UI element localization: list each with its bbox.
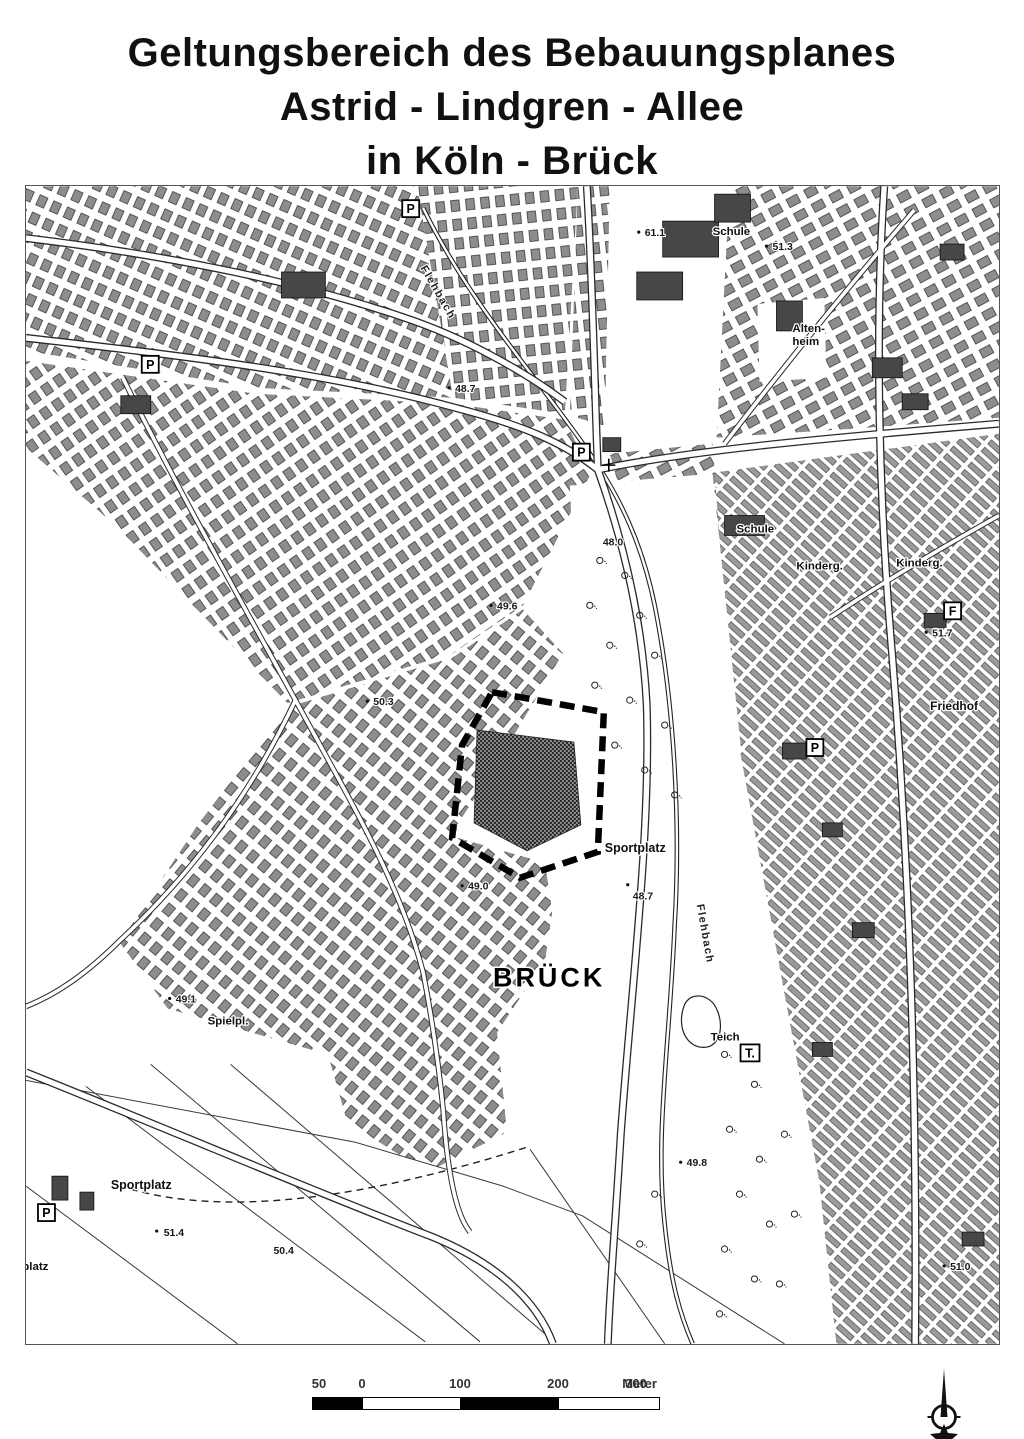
plan-site-hatched	[474, 730, 581, 851]
scale-bar: 50 0 100 200 300 Meter	[310, 1376, 670, 1416]
spielplatz-label: Spielpl.	[208, 1015, 249, 1027]
city-map: P P P P P F T.	[26, 186, 999, 1344]
altenheim-label-line2: heim	[792, 336, 819, 348]
sportplatz-east-label: Sportplatz	[605, 841, 666, 855]
elevation-label: 61.1	[645, 228, 666, 239]
north-arrow-icon	[918, 1367, 972, 1439]
map-canvas: P P P P P F T.	[25, 185, 1000, 1345]
t-letter: T.	[745, 1046, 755, 1060]
parking-letter: P	[42, 1206, 50, 1220]
plan-document-page: Geltungsbereich des Bebauungsplanes Astr…	[0, 0, 1024, 1439]
parking-symbol: P	[806, 739, 823, 756]
scale-segment	[363, 1398, 461, 1409]
brueck-label: BRÜCK	[493, 963, 605, 993]
title-line-3: in Köln - Brück	[0, 134, 1024, 188]
elevation-label: 48.7	[455, 384, 476, 395]
elevation-label: 51.7	[932, 628, 953, 639]
elevation-label: 49.8	[687, 1158, 708, 1169]
schule-north-label: Schule	[713, 226, 751, 238]
schule-center-label: Schule	[737, 523, 775, 535]
scale-segment	[313, 1398, 363, 1409]
scale-tick-100: 100	[449, 1376, 471, 1391]
sportplatz-southwest-label: Sportplatz	[111, 1178, 172, 1192]
elevation-label: 48.7	[633, 892, 654, 903]
title-line-1: Geltungsbereich des Bebauungsplanes	[0, 26, 1024, 80]
scale-tick-300-unit: 300 Meter	[636, 1376, 640, 1391]
scale-segment	[559, 1398, 657, 1409]
friedhof-label: Friedhof	[930, 699, 979, 713]
parking-symbol: P	[402, 200, 419, 217]
elevation-label: 50.4	[273, 1246, 294, 1257]
elevation-label: 49.0	[468, 882, 489, 893]
elevation-label: 50.3	[373, 697, 394, 708]
elevation-label: 51.0	[950, 1262, 971, 1273]
bolzplatz-label: Bolzplatz	[26, 1261, 49, 1273]
elevation-label: 49.1	[176, 995, 197, 1006]
parking-letter: P	[146, 358, 154, 372]
title-line-2: Astrid - Lindgren - Allee	[0, 80, 1024, 134]
t-symbol: T.	[741, 1044, 760, 1061]
scale-bar-labels: 50 0 100 200 300 Meter	[310, 1376, 670, 1393]
scale-tick-200: 200	[547, 1376, 569, 1391]
scale-tick-50: 50	[312, 1376, 326, 1391]
elevation-label: 51.4	[164, 1228, 185, 1239]
page-title: Geltungsbereich des Bebauungsplanes Astr…	[0, 26, 1024, 188]
scale-segment	[461, 1398, 559, 1409]
scale-bar-segments	[312, 1397, 660, 1410]
parking-symbol: P	[38, 1204, 55, 1221]
elevation-label: 49.6	[497, 601, 518, 612]
altenheim-label-line1: Alten-	[792, 323, 825, 335]
parking-letter: P	[407, 202, 415, 216]
f-letter: F	[949, 604, 957, 618]
parking-symbol: P	[142, 356, 159, 373]
parking-letter: P	[811, 741, 819, 755]
teich-label: Teich	[711, 1031, 740, 1043]
f-symbol: F	[944, 602, 961, 619]
kindergarten-west-label: Kinderg.	[796, 560, 843, 572]
church-building	[603, 438, 621, 452]
elevation-label: 51.3	[772, 242, 793, 253]
scale-tick-0: 0	[358, 1376, 365, 1391]
parking-letter: P	[577, 446, 585, 460]
parking-symbol: P	[573, 444, 590, 461]
elevation-label: 48.0	[603, 537, 624, 548]
scale-unit: Meter	[622, 1376, 657, 1391]
kindergarten-east-label: Kinderg.	[896, 557, 943, 569]
